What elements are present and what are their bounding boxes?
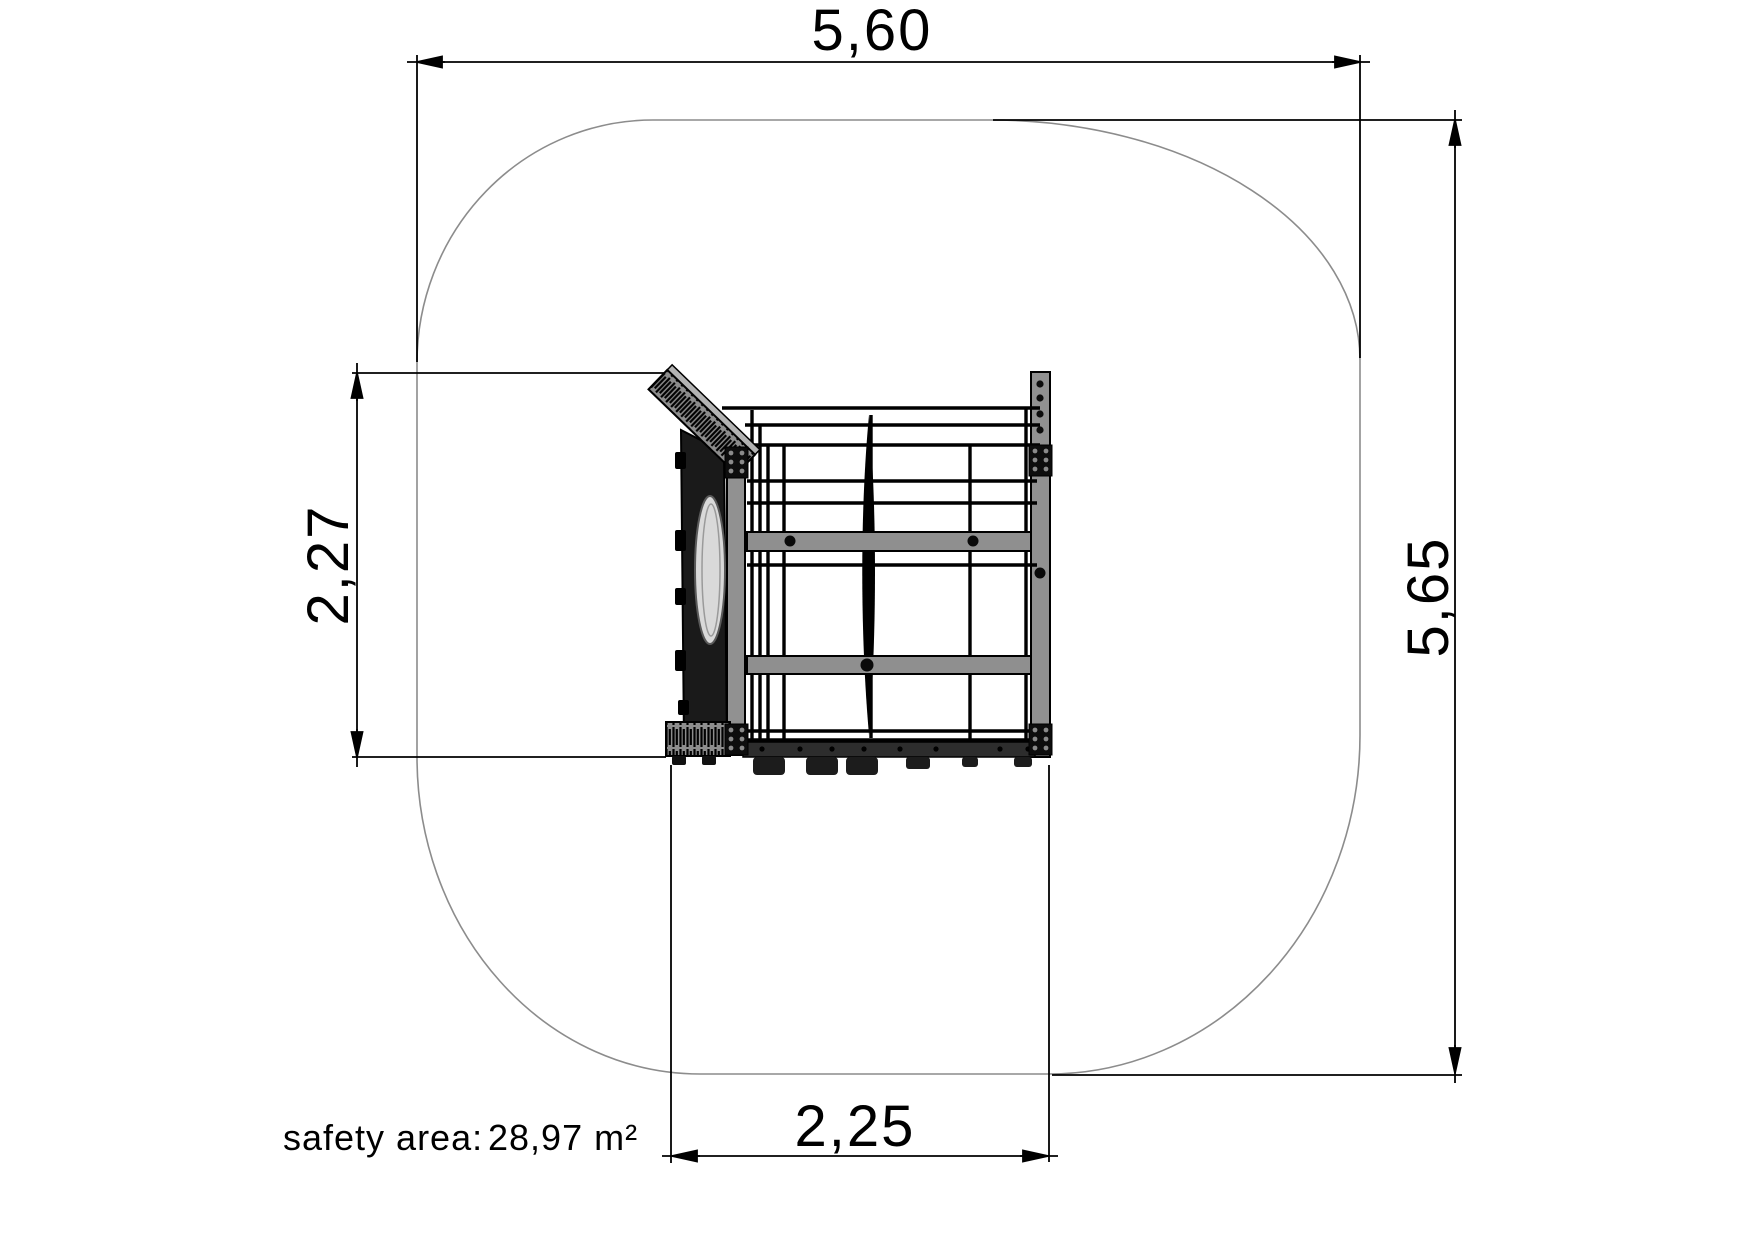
arrowhead xyxy=(417,57,442,68)
hatched-sill xyxy=(666,722,730,756)
safety-area-label: safety area: xyxy=(283,1117,483,1158)
dimension-left xyxy=(352,363,667,767)
left-post xyxy=(727,445,745,755)
dimension-right-label: 5,65 xyxy=(1396,537,1461,658)
arrowhead xyxy=(352,373,363,398)
dimension-top-label: 5,60 xyxy=(812,0,933,63)
connector-bolts xyxy=(729,449,1049,751)
bottom-frame-bar xyxy=(743,742,1035,757)
dimension-right xyxy=(993,110,1462,1083)
arrowhead xyxy=(1023,1151,1048,1162)
dimension-left-label: 2,27 xyxy=(296,505,361,626)
connector-blocks xyxy=(725,445,1052,755)
safety-area-value: 28,97 m² xyxy=(488,1117,638,1158)
arrowhead xyxy=(672,1151,697,1162)
safety-area-outline xyxy=(417,120,1360,1074)
beam-bolts xyxy=(785,536,1046,672)
arrowhead xyxy=(1450,120,1461,145)
equipment-structure xyxy=(649,365,1052,775)
dimension-top xyxy=(407,55,1370,362)
cad-sheet: 5,60 5,65 2,27 2,25 safety area: 28,97 m… xyxy=(0,0,1753,1240)
foot-pads xyxy=(753,757,1032,775)
safety-area-plan-drawing: 5,60 5,65 2,27 2,25 safety area: 28,97 m… xyxy=(0,0,1753,1240)
arrowhead xyxy=(352,732,363,757)
cage-vertical-bars xyxy=(752,408,1026,740)
arrowhead xyxy=(1450,1048,1461,1073)
center-pole xyxy=(862,415,875,735)
sill-feet xyxy=(672,756,716,765)
arrowhead xyxy=(1335,57,1360,68)
cross-beam-lower xyxy=(747,656,1031,674)
dimension-bottom-label: 2,25 xyxy=(795,1094,916,1159)
